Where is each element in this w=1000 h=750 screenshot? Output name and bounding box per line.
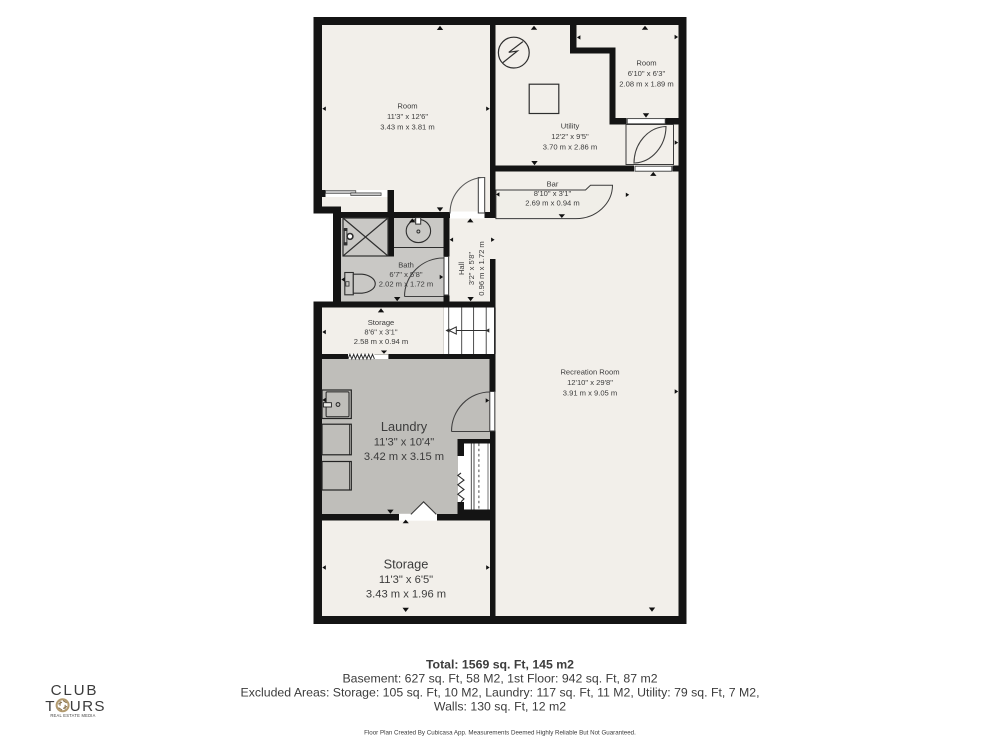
- svg-text:12'2" x 9'5": 12'2" x 9'5": [551, 132, 589, 141]
- svg-text:12'10" x 29'8": 12'10" x 29'8": [567, 378, 613, 387]
- svg-text:3.43 m x 1.96 m: 3.43 m x 1.96 m: [366, 588, 446, 600]
- svg-text:3'2" x 5'8": 3'2" x 5'8": [467, 252, 476, 286]
- svg-text:Hall: Hall: [457, 262, 466, 275]
- svg-text:3.43 m x 3.81 m: 3.43 m x 3.81 m: [380, 123, 434, 132]
- svg-text:Excluded Areas: Storage: 105 s: Excluded Areas: Storage: 105 sq. Ft, 10 …: [241, 686, 760, 700]
- svg-text:Bath: Bath: [398, 261, 414, 270]
- svg-text:2.08 m x 1.89 m: 2.08 m x 1.89 m: [619, 80, 673, 89]
- svg-text:Storage: Storage: [384, 556, 429, 571]
- svg-text:3.70 m x 2.86 m: 3.70 m x 2.86 m: [543, 143, 597, 152]
- svg-text:6'7" x 5'8": 6'7" x 5'8": [389, 270, 423, 279]
- svg-text:CLUB: CLUB: [51, 682, 99, 699]
- svg-text:8'10" x 3'1": 8'10" x 3'1": [534, 189, 572, 198]
- svg-text:Room: Room: [397, 102, 417, 111]
- svg-text:0.96 m x 1.72 m: 0.96 m x 1.72 m: [477, 241, 486, 295]
- svg-text:2.69 m x 0.94 m: 2.69 m x 0.94 m: [525, 198, 579, 207]
- svg-text:3.91 m x 9.05 m: 3.91 m x 9.05 m: [563, 389, 617, 398]
- svg-text:2.02 m x 1.72 m: 2.02 m x 1.72 m: [379, 280, 433, 289]
- svg-text:Recreation Room: Recreation Room: [560, 368, 619, 377]
- svg-text:Basement: 627 sq. Ft, 58 M2, 1: Basement: 627 sq. Ft, 58 M2, 1st Floor: …: [342, 672, 657, 686]
- svg-text:11'3" x 12'6": 11'3" x 12'6": [387, 112, 428, 121]
- svg-text:11'3" x 10'4": 11'3" x 10'4": [374, 437, 435, 449]
- svg-text:6'10" x 6'3": 6'10" x 6'3": [628, 69, 666, 78]
- svg-text:8'6" x 3'1": 8'6" x 3'1": [364, 328, 398, 337]
- svg-text:Walls: 130 sq. Ft, 12 m2: Walls: 130 sq. Ft, 12 m2: [434, 700, 566, 714]
- svg-text:Utility: Utility: [561, 122, 580, 131]
- svg-text:REAL ESTATE MEDIA: REAL ESTATE MEDIA: [50, 713, 95, 718]
- svg-text:Storage: Storage: [368, 318, 395, 327]
- svg-text:11'3" x 6'5": 11'3" x 6'5": [379, 574, 433, 586]
- svg-text:Floor Plan Created By Cubicasa: Floor Plan Created By Cubicasa App. Meas…: [364, 730, 636, 737]
- svg-text:2.58 m x 0.94 m: 2.58 m x 0.94 m: [354, 337, 408, 346]
- svg-text:Total: 1569 sq. Ft, 145 m2: Total: 1569 sq. Ft, 145 m2: [426, 658, 574, 672]
- svg-text:Room: Room: [636, 59, 656, 68]
- svg-text:3.42 m x 3.15 m: 3.42 m x 3.15 m: [364, 451, 444, 463]
- svg-text:Bar: Bar: [547, 179, 559, 188]
- svg-text:Laundry: Laundry: [381, 419, 428, 434]
